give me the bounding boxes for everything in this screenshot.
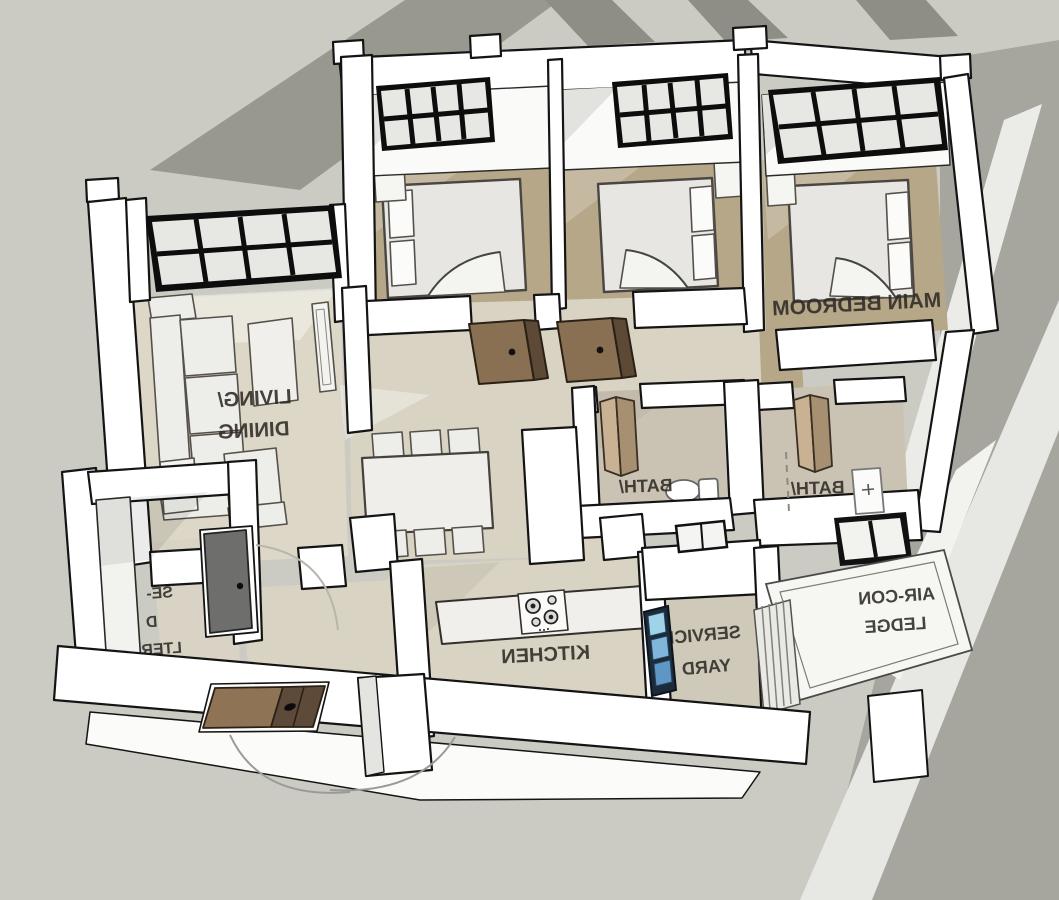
knob bbox=[539, 629, 541, 631]
sofa-cushion bbox=[180, 316, 236, 376]
floor-plan-svg: LIVING/ DINING MAIN BEDROOM BATH/ BATH/ … bbox=[0, 0, 1059, 900]
louver-slat bbox=[648, 612, 666, 636]
porch-wall-stub bbox=[358, 674, 432, 776]
kitchen-label: KITCHEN bbox=[501, 642, 591, 669]
grid-window-icon-bedroom3 bbox=[612, 73, 733, 148]
grid-window-icon-main-bedroom bbox=[768, 77, 948, 164]
bath1-label: BATH/ bbox=[619, 475, 673, 497]
pillow bbox=[390, 240, 416, 286]
door-panel bbox=[557, 318, 622, 382]
door-panel-leaf1 bbox=[203, 687, 283, 728]
living-label-line2: DINING bbox=[217, 417, 290, 444]
burner bbox=[548, 596, 556, 604]
wall-segment bbox=[724, 380, 764, 515]
floor-plan-render: LIVING/ DINING MAIN BEDROOM BATH/ BATH/ … bbox=[0, 0, 1059, 900]
burner-center bbox=[549, 615, 554, 620]
door-panel bbox=[204, 530, 252, 633]
steel-door-icon bbox=[200, 526, 258, 637]
bed-icon-main-bedroom bbox=[788, 180, 914, 302]
service-yard-label-line2: YARD bbox=[681, 655, 732, 679]
wall-stub bbox=[868, 690, 928, 782]
wall-segment bbox=[756, 382, 794, 410]
swing-door-icon-bedroom2 bbox=[469, 320, 548, 384]
window-icon-service-yard bbox=[676, 521, 727, 552]
door-handle bbox=[597, 347, 604, 354]
cooktop-icon bbox=[518, 590, 568, 634]
swing-door-icon-bedroom3 bbox=[557, 318, 636, 382]
bed-icon-bedroom3 bbox=[598, 178, 718, 292]
knob bbox=[547, 628, 549, 630]
bifold-door-icon-bath1 bbox=[600, 397, 638, 476]
pillow bbox=[692, 234, 716, 280]
door-handle bbox=[509, 349, 516, 356]
wall-cap bbox=[470, 34, 501, 58]
burner-center bbox=[531, 604, 536, 609]
wall-segment bbox=[633, 288, 747, 328]
wall-segment bbox=[126, 198, 150, 302]
wall-segment bbox=[548, 59, 566, 310]
wall-segment bbox=[834, 377, 906, 404]
shelter-label-fragment2: D bbox=[145, 614, 158, 632]
wall-segment bbox=[776, 320, 936, 370]
wall-segment bbox=[522, 427, 584, 564]
door-panel bbox=[469, 320, 534, 384]
pillow bbox=[886, 192, 910, 240]
pillow bbox=[690, 186, 714, 232]
dining-chair-icon bbox=[414, 528, 446, 556]
wall-segment bbox=[342, 286, 372, 433]
burner bbox=[532, 618, 540, 626]
wall-cap bbox=[733, 26, 767, 50]
louver-slat bbox=[654, 660, 672, 686]
door-handle bbox=[237, 583, 243, 589]
living-label-line1: LIVING/ bbox=[217, 385, 292, 412]
dining-chair-icon bbox=[452, 526, 484, 554]
grid-window-icon-living bbox=[146, 205, 342, 292]
bifold-door-icon-bath2 bbox=[794, 395, 832, 472]
knob bbox=[543, 629, 545, 631]
grid-window-icon-bedroom2 bbox=[376, 77, 495, 151]
entrance-door-icon bbox=[199, 682, 329, 732]
pillow bbox=[888, 242, 912, 290]
louver-slat bbox=[651, 636, 669, 660]
shelter-label-fragment1: SE- bbox=[146, 584, 174, 603]
